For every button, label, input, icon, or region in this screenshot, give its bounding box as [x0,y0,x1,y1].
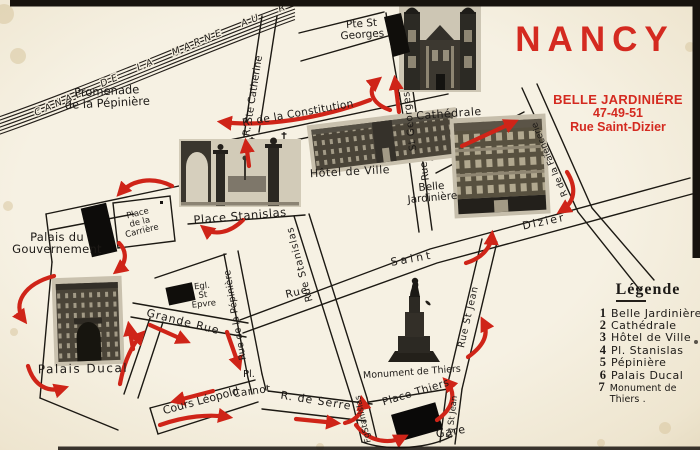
legend-item: 7 Monument de Thiers . [588,380,700,392]
legend-item: 3 Hôtel de Ville [588,330,700,342]
cathedrale-label: Cathédrale [416,106,482,122]
place-thiers-label: Place Thiers [381,378,451,409]
shop-street: Rue Saint-Dizier [548,121,688,135]
belle-jardiniere-label: Belle Jardinière [406,180,458,207]
street-label-constitution: R. de la Constitution [241,99,354,130]
street-label-pepiniere: Rue de la Pépinière [223,269,249,361]
legend: Légende 1 Belle Jardinière 2 Cathédrale … [588,281,700,392]
city-title: NANCY [505,20,685,60]
street-label-dizier: Dizier [521,212,566,232]
shop-ad-block: BELLE JARDINIÉRE 47-49-51 Rue Saint-Dizi… [548,93,688,135]
legend-title: Légende [588,281,700,299]
legend-item: 5 Pépinière [588,355,700,367]
street-label-grande-rue: Grande Rue [145,307,221,336]
legend-underline [616,300,646,302]
legend-item: 1 Belle Jardinière [588,306,700,318]
hotel-de-ville-label: Hôtel de Ville [310,164,391,180]
palais-ducal-label: Palais Ducal [38,362,128,376]
place-carriere-label: Place de la Carrière [120,206,160,240]
legend-item: 2 Cathédrale [588,318,700,330]
street-label-fg-stanislas: FgStanislas [354,394,374,443]
pte-st-georges-label: Pte St Georges [339,17,384,42]
palais-gouvernement-label: Palais du Gouvernement [12,231,102,255]
postcard-map-nancy: CANAL DE LA MARNE AU RHIN [0,0,700,450]
shop-name: BELLE JARDINIÉRE [548,93,688,107]
street-label-st-jean: Rue St Jean [457,285,481,349]
street-label-r-de-serre: R. de Serre [280,390,353,413]
street-label-cours-leopold: Cours Léopold [162,385,241,417]
legend-item: 6 Palais Ducal [588,368,700,380]
label-layer: Promenade de la Pépinière R. Ste Catheri… [0,0,700,450]
eglise-st-epvre-label: Egl. St Epvre [189,281,216,310]
promenade-label: Promenade de la Pépinière [64,83,150,112]
street-label-saint: Saint [390,250,434,269]
pl-carnot-label-pl: Pl. [243,370,255,381]
shop-numbers: 47-49-51 [548,107,688,121]
street-label-st-georges-rue: Rue [420,161,433,181]
legend-item: 4 Pl. Stanislas [588,343,700,355]
place-stanislas-label: Place Stanislas [193,206,287,226]
